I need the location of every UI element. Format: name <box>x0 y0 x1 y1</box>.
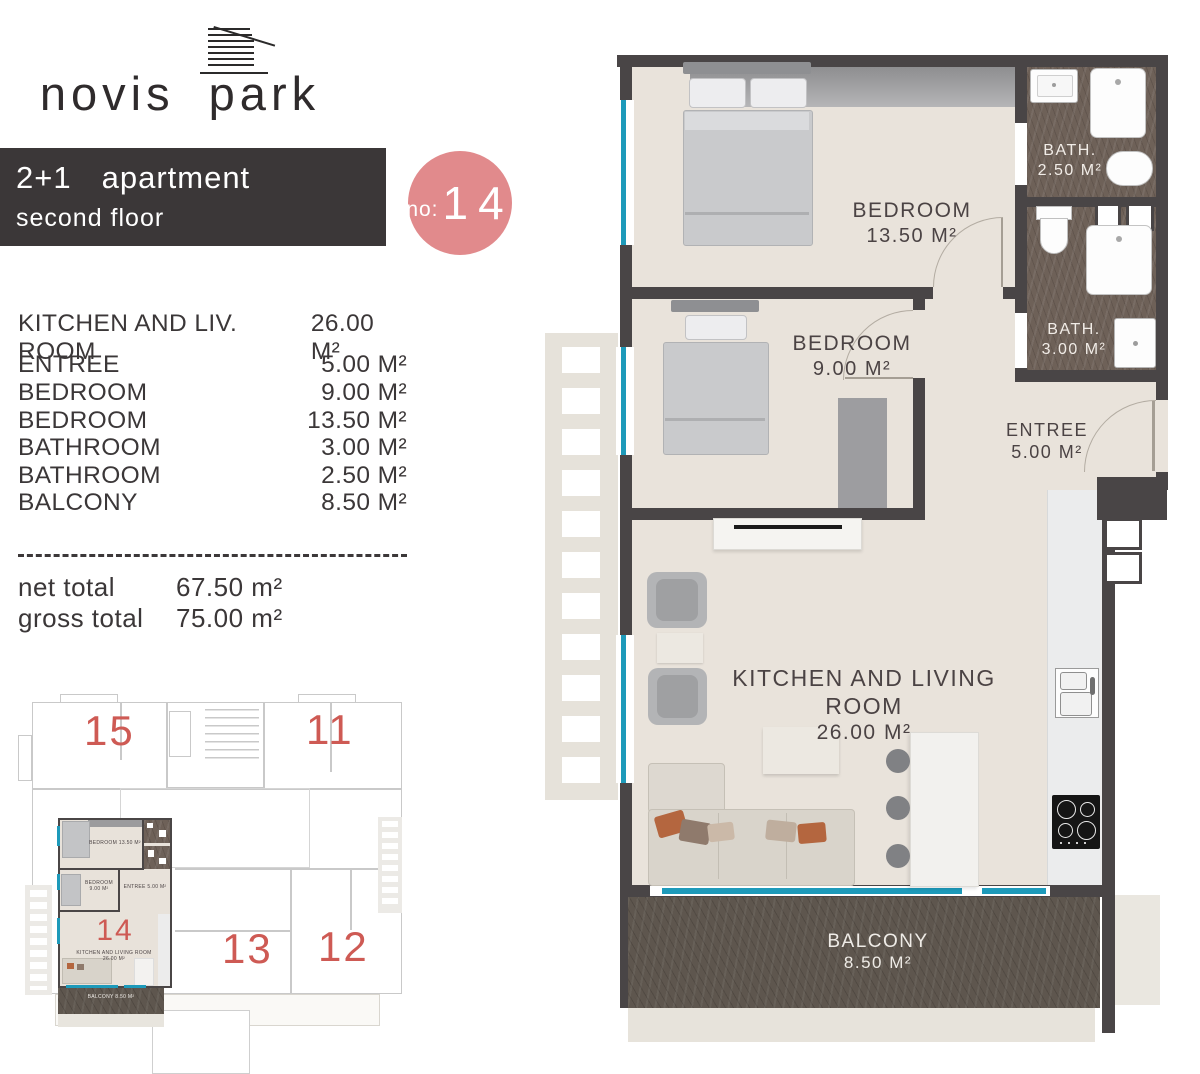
kitchen-sink <box>1055 668 1099 718</box>
window-band <box>982 888 1046 894</box>
net-total-label: net total <box>18 572 176 603</box>
bar-stool <box>886 796 910 820</box>
room-area: 5.00 M² <box>977 442 1117 464</box>
stair-core <box>166 702 264 788</box>
room-name: BEDROOM <box>822 198 1002 224</box>
kitchen-island <box>910 732 979 887</box>
unit-number-badge: no: 14 <box>408 151 512 255</box>
room-list-row: KITCHEN AND LIV. ROOM26.00 M² <box>18 324 407 352</box>
tv <box>734 525 842 529</box>
facade-louver-mini <box>378 817 402 913</box>
shower-tray <box>1090 68 1146 138</box>
wall <box>632 287 933 299</box>
mini-window-band <box>66 985 118 988</box>
throw-pillow <box>707 821 735 842</box>
bed-headboard <box>671 300 759 312</box>
mini-wall <box>60 910 120 912</box>
armchair-cushion <box>657 675 698 718</box>
room-name: BEDROOM <box>767 331 937 357</box>
wall <box>1003 287 1015 299</box>
badge-number: 14 <box>443 176 514 230</box>
throw-pillow <box>765 819 797 842</box>
room-name: ENTREE <box>977 420 1117 442</box>
room-area: 2.50 M² <box>321 462 407 490</box>
facade-louver-mini <box>25 885 52 995</box>
mini-kitchen-label: KITCHEN AND LIVING ROOM 26.00 M² <box>72 950 156 962</box>
room-name: BATH. <box>1018 320 1130 340</box>
mini-window <box>57 918 60 944</box>
mini-wall <box>118 868 120 912</box>
room-area: 8.50 M² <box>778 953 978 974</box>
room-area: 13.50 M² <box>307 407 407 435</box>
sofa-chaise <box>648 763 725 813</box>
wall <box>913 378 925 520</box>
wall <box>1156 380 1168 400</box>
balcony-tab <box>18 735 32 781</box>
wall <box>620 897 628 1008</box>
unit-number: 12 <box>318 926 369 968</box>
room-name: BALCONY <box>18 489 138 517</box>
shower-drain <box>1115 79 1121 85</box>
mini-window <box>57 826 60 846</box>
stairs <box>205 709 259 765</box>
bed-headboard <box>683 62 811 74</box>
highlighted-unit-14: BEDROOM 13.50 M² BEDROOM 9.00 M² ENTREE … <box>58 818 172 1030</box>
wall <box>1102 520 1115 1033</box>
banner-title-text: apartment <box>102 160 251 196</box>
corner-sofa <box>648 763 853 886</box>
elevator <box>169 711 191 757</box>
tv-console <box>713 518 862 550</box>
gross-total-value: 75.00 m² <box>176 603 283 634</box>
room-divider <box>350 868 352 930</box>
mini-bed <box>61 874 81 906</box>
burner <box>1080 802 1095 817</box>
shower-tray <box>1086 225 1152 295</box>
dashed-divider <box>18 554 407 557</box>
room-area: 8.50 M² <box>321 489 407 517</box>
room-list-row: BATHROOM3.00 M² <box>18 434 407 462</box>
mini-entree-label: ENTREE 5.00 M² <box>120 884 170 890</box>
mini-window-band <box>124 985 146 988</box>
room-area: 3.00 M² <box>1018 340 1130 360</box>
louver-slats <box>382 821 398 909</box>
bed-pillow <box>689 78 746 108</box>
unit-number: 13 <box>222 928 273 970</box>
wardrobe <box>838 398 887 508</box>
mini-bedroom-small-label: BEDROOM 9.00 M² <box>80 880 118 892</box>
entrance-door-leaf <box>1152 401 1155 471</box>
burner <box>1058 823 1073 838</box>
room-area: 9.00 M² <box>767 357 937 381</box>
window <box>621 635 626 783</box>
bed-fold <box>685 112 809 130</box>
shower-drain <box>1116 236 1122 242</box>
burner <box>1077 821 1096 840</box>
bathroom-sink <box>1030 69 1078 103</box>
exterior-terrace-right <box>1115 895 1160 1005</box>
room-name: BEDROOM <box>18 407 147 435</box>
key-plan: 15 11 13 12 BEDROOM 13.50 M² BEDROOM 9.0… <box>14 688 424 1074</box>
bed-duvet <box>663 342 769 455</box>
sink-bowl <box>1060 672 1087 690</box>
armchair <box>648 668 707 725</box>
room-area: 3.00 M² <box>321 434 407 462</box>
bedroom-small-label: BEDROOM 9.00 M² <box>767 331 937 381</box>
mini-bedroom-large-label: BEDROOM 13.50 M² <box>88 840 142 846</box>
louver-slats <box>30 890 47 990</box>
louver-slats <box>562 347 600 787</box>
brand-name: novis park <box>20 66 340 121</box>
window <box>621 347 626 455</box>
cooktop-knobs <box>1060 842 1092 844</box>
balcony-label: BALCONY 8.50 M² <box>778 930 978 974</box>
sink-bowl <box>1060 692 1092 716</box>
bedroom-large-label: BEDROOM 13.50 M² <box>822 198 1002 248</box>
entree-label: ENTREE 5.00 M² <box>977 420 1117 464</box>
shaft <box>1104 552 1142 584</box>
gross-total-row: gross total 75.00 m² <box>18 603 407 634</box>
banner-title: 2+1 apartment <box>16 160 250 196</box>
mini-bed <box>62 821 90 858</box>
bed-pillow <box>685 315 747 340</box>
mini-counter <box>158 914 170 986</box>
cooktop <box>1052 795 1100 849</box>
badge-prefix: no: <box>406 198 438 222</box>
gross-total-label: gross total <box>18 603 176 634</box>
mini-balcony-label: BALCONY 8.50 M² <box>68 994 154 1000</box>
room-name: BATHROOM <box>18 434 161 462</box>
armchair <box>647 572 707 628</box>
wall <box>1015 370 1168 382</box>
room-list-row: BATHROOM2.50 M² <box>18 462 407 490</box>
single-bed <box>663 300 767 453</box>
window <box>621 100 626 245</box>
building-icon-line <box>208 52 254 54</box>
banner-unit-type: 2+1 <box>16 160 72 196</box>
mini-wall <box>142 820 144 869</box>
building-icon-line <box>208 28 250 30</box>
banner-subtitle: second floor <box>16 204 164 233</box>
balcony-tab <box>298 694 356 703</box>
totals: net total 67.50 m² gross total 75.00 m² <box>18 572 407 634</box>
room-name: BATHROOM <box>18 462 161 490</box>
kitchen-living-label: KITCHEN AND LIVING ROOM 26.00 M² <box>730 664 998 746</box>
building-icon-line <box>208 40 254 42</box>
room-name: ENTREE <box>18 351 120 379</box>
wall <box>1156 67 1168 380</box>
room-list-row: BEDROOM13.50 M² <box>18 407 407 435</box>
bed-fold-line <box>685 212 809 215</box>
unit-divider <box>263 702 265 788</box>
balcony-outer-step <box>628 1008 1095 1042</box>
net-total-row: net total 67.50 m² <box>18 572 407 603</box>
room-list-row: BALCONY8.50 M² <box>18 490 407 518</box>
building-icon-line <box>208 58 254 60</box>
main-floor-plan: BEDROOM 13.50 M² BEDROOM 9.00 M² BATH. 2… <box>612 48 1172 1070</box>
mini-fixture <box>159 830 166 837</box>
unit-divider <box>175 868 402 870</box>
mini-pillow <box>67 963 74 969</box>
room-name: BEDROOM <box>18 379 147 407</box>
net-total-value: 67.50 m² <box>176 572 283 603</box>
title-banner: 2+1 apartment second floor <box>0 148 386 246</box>
toilet-bowl <box>1040 218 1068 254</box>
side-table <box>657 633 703 663</box>
mini-bath <box>144 820 170 843</box>
throw-pillow <box>797 822 827 844</box>
armchair-cushion <box>656 579 698 621</box>
mini-fixture <box>147 823 153 828</box>
room-name: KITCHEN AND LIVING ROOM <box>730 664 998 720</box>
wall <box>913 299 925 310</box>
mini-balcony <box>58 988 164 1014</box>
mini-unit-number: 14 <box>88 914 142 948</box>
room-list-row: BEDROOM9.00 M² <box>18 379 407 407</box>
wall <box>1097 477 1167 520</box>
bed-fold-line <box>665 418 765 421</box>
double-bed <box>683 62 811 244</box>
brand-logo: novis park <box>0 0 420 140</box>
room-area: 5.00 M² <box>321 351 407 379</box>
mini-wardrobe <box>88 820 144 827</box>
shaft <box>1104 518 1142 550</box>
burner <box>1057 800 1076 819</box>
facade-louver-strip <box>545 333 618 800</box>
room-area: 9.00 M² <box>321 379 407 407</box>
sink-drain <box>1052 83 1056 87</box>
mini-pillow <box>77 964 84 970</box>
bed-duvet <box>683 110 813 246</box>
balcony-tab <box>60 694 118 703</box>
mini-wall <box>60 868 144 870</box>
mini-bath <box>144 846 170 869</box>
bar-stool <box>886 749 910 773</box>
bed-pillow <box>750 78 807 108</box>
mini-fixture <box>148 850 154 857</box>
room-area: 13.50 M² <box>822 224 1002 248</box>
room-name: BALCONY <box>778 930 978 953</box>
unit-divider <box>166 702 168 788</box>
room-name: BATH. <box>1014 141 1126 161</box>
room-area-list: KITCHEN AND LIV. ROOM26.00 M² ENTREE5.00… <box>18 324 407 517</box>
room-area: 26.00 M² <box>730 720 998 746</box>
mini-window <box>57 874 60 890</box>
sink-drain <box>1133 341 1138 346</box>
building-icon-line <box>208 46 254 48</box>
mini-fixture <box>159 858 166 864</box>
bath-large-label: BATH. 3.00 M² <box>1018 320 1130 359</box>
mini-island <box>134 958 154 986</box>
sink-faucet <box>1090 677 1095 695</box>
bath-small-label: BATH. 2.50 M² <box>1014 141 1126 180</box>
unit-number: 15 <box>84 710 135 752</box>
mini-balcony-step <box>58 1014 164 1027</box>
unit-divider <box>290 868 292 994</box>
room-area: 2.50 M² <box>1014 161 1126 181</box>
bar-stool <box>886 844 910 868</box>
unit-number: 11 <box>306 709 354 751</box>
window-band <box>662 888 962 894</box>
